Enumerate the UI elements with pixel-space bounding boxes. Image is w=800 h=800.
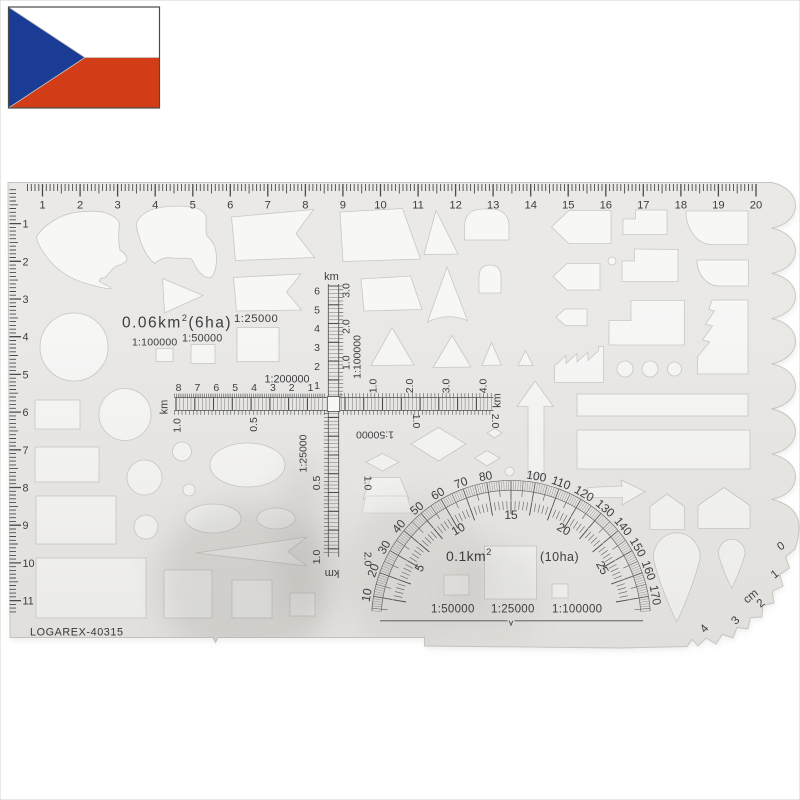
svg-text:12: 12 bbox=[449, 200, 461, 212]
svg-text:0.06km2(6ha): 0.06km2(6ha) bbox=[122, 313, 232, 332]
svg-text:1:200000: 1:200000 bbox=[264, 374, 309, 386]
svg-text:1:25000: 1:25000 bbox=[298, 434, 310, 472]
svg-text:2: 2 bbox=[77, 200, 83, 212]
svg-text:11: 11 bbox=[23, 596, 34, 608]
svg-text:6: 6 bbox=[227, 200, 233, 212]
svg-text:3.0: 3.0 bbox=[341, 283, 353, 298]
svg-text:10: 10 bbox=[374, 200, 386, 212]
svg-text:9: 9 bbox=[23, 520, 29, 532]
svg-text:8: 8 bbox=[302, 200, 308, 212]
svg-text:1.0: 1.0 bbox=[368, 379, 380, 394]
svg-text:5: 5 bbox=[190, 200, 196, 212]
svg-text:(10ha): (10ha) bbox=[540, 550, 579, 564]
svg-text:5: 5 bbox=[314, 304, 320, 316]
svg-text:7: 7 bbox=[265, 200, 271, 212]
svg-text:13: 13 bbox=[487, 200, 499, 212]
svg-text:1:50000: 1:50000 bbox=[356, 429, 394, 441]
svg-text:4: 4 bbox=[314, 323, 320, 335]
svg-text:3: 3 bbox=[23, 294, 29, 306]
svg-text:3: 3 bbox=[114, 200, 120, 212]
svg-text:1:25000: 1:25000 bbox=[491, 604, 535, 616]
svg-text:20: 20 bbox=[750, 200, 762, 212]
svg-text:1:100000: 1:100000 bbox=[352, 335, 364, 379]
svg-text:4: 4 bbox=[152, 200, 158, 212]
svg-text:1:50000: 1:50000 bbox=[182, 333, 222, 345]
svg-text:6: 6 bbox=[213, 382, 219, 394]
svg-text:1:25000: 1:25000 bbox=[234, 313, 278, 325]
svg-text:9: 9 bbox=[340, 200, 346, 212]
svg-text:7: 7 bbox=[194, 382, 200, 394]
svg-text:5: 5 bbox=[23, 369, 29, 381]
svg-text:15: 15 bbox=[562, 200, 574, 212]
svg-text:7: 7 bbox=[23, 445, 29, 457]
svg-text:15: 15 bbox=[504, 508, 518, 522]
svg-text:0.1km2: 0.1km2 bbox=[446, 547, 492, 564]
svg-text:1: 1 bbox=[23, 219, 29, 231]
svg-text:14: 14 bbox=[524, 200, 536, 212]
svg-text:2: 2 bbox=[23, 256, 29, 268]
svg-text:1:50000: 1:50000 bbox=[431, 604, 475, 616]
svg-text:18: 18 bbox=[675, 200, 687, 212]
svg-text:0.5: 0.5 bbox=[248, 417, 260, 432]
svg-text:1: 1 bbox=[39, 200, 45, 212]
svg-text:6: 6 bbox=[314, 286, 320, 298]
svg-text:8: 8 bbox=[176, 382, 182, 394]
svg-text:2.0: 2.0 bbox=[404, 379, 416, 394]
svg-text:1.0: 1.0 bbox=[172, 418, 184, 433]
svg-text:8: 8 bbox=[23, 483, 29, 495]
svg-text:19: 19 bbox=[712, 200, 724, 212]
svg-text:1:100000: 1:100000 bbox=[132, 337, 177, 349]
svg-text:km: km bbox=[159, 400, 171, 415]
svg-text:10: 10 bbox=[23, 558, 35, 570]
svg-text:10: 10 bbox=[359, 587, 375, 603]
svg-text:80: 80 bbox=[478, 468, 494, 484]
svg-text:LOGAREX-40315: LOGAREX-40315 bbox=[30, 627, 124, 639]
svg-text:2.0: 2.0 bbox=[489, 414, 501, 429]
svg-text:1:100000: 1:100000 bbox=[552, 604, 602, 616]
svg-text:4: 4 bbox=[23, 332, 29, 344]
svg-text:4.0: 4.0 bbox=[477, 379, 489, 394]
svg-text:km: km bbox=[492, 393, 504, 408]
svg-text:17: 17 bbox=[637, 200, 649, 212]
svg-text:11: 11 bbox=[412, 200, 424, 212]
svg-text:16: 16 bbox=[600, 200, 612, 212]
svg-text:1.0: 1.0 bbox=[410, 414, 422, 429]
svg-text:4: 4 bbox=[251, 382, 257, 394]
svg-text:3: 3 bbox=[314, 342, 320, 354]
svg-text:3.0: 3.0 bbox=[441, 379, 453, 394]
svg-text:0.5: 0.5 bbox=[311, 476, 323, 491]
svg-text:km: km bbox=[324, 271, 339, 283]
svg-text:km: km bbox=[325, 567, 340, 579]
svg-text:1: 1 bbox=[314, 380, 320, 392]
svg-text:2.0: 2.0 bbox=[341, 319, 353, 334]
svg-text:1.0: 1.0 bbox=[362, 476, 374, 491]
svg-text:2: 2 bbox=[314, 361, 320, 373]
svg-text:6: 6 bbox=[23, 407, 29, 419]
svg-text:1.0: 1.0 bbox=[311, 550, 323, 565]
svg-text:5: 5 bbox=[232, 382, 238, 394]
